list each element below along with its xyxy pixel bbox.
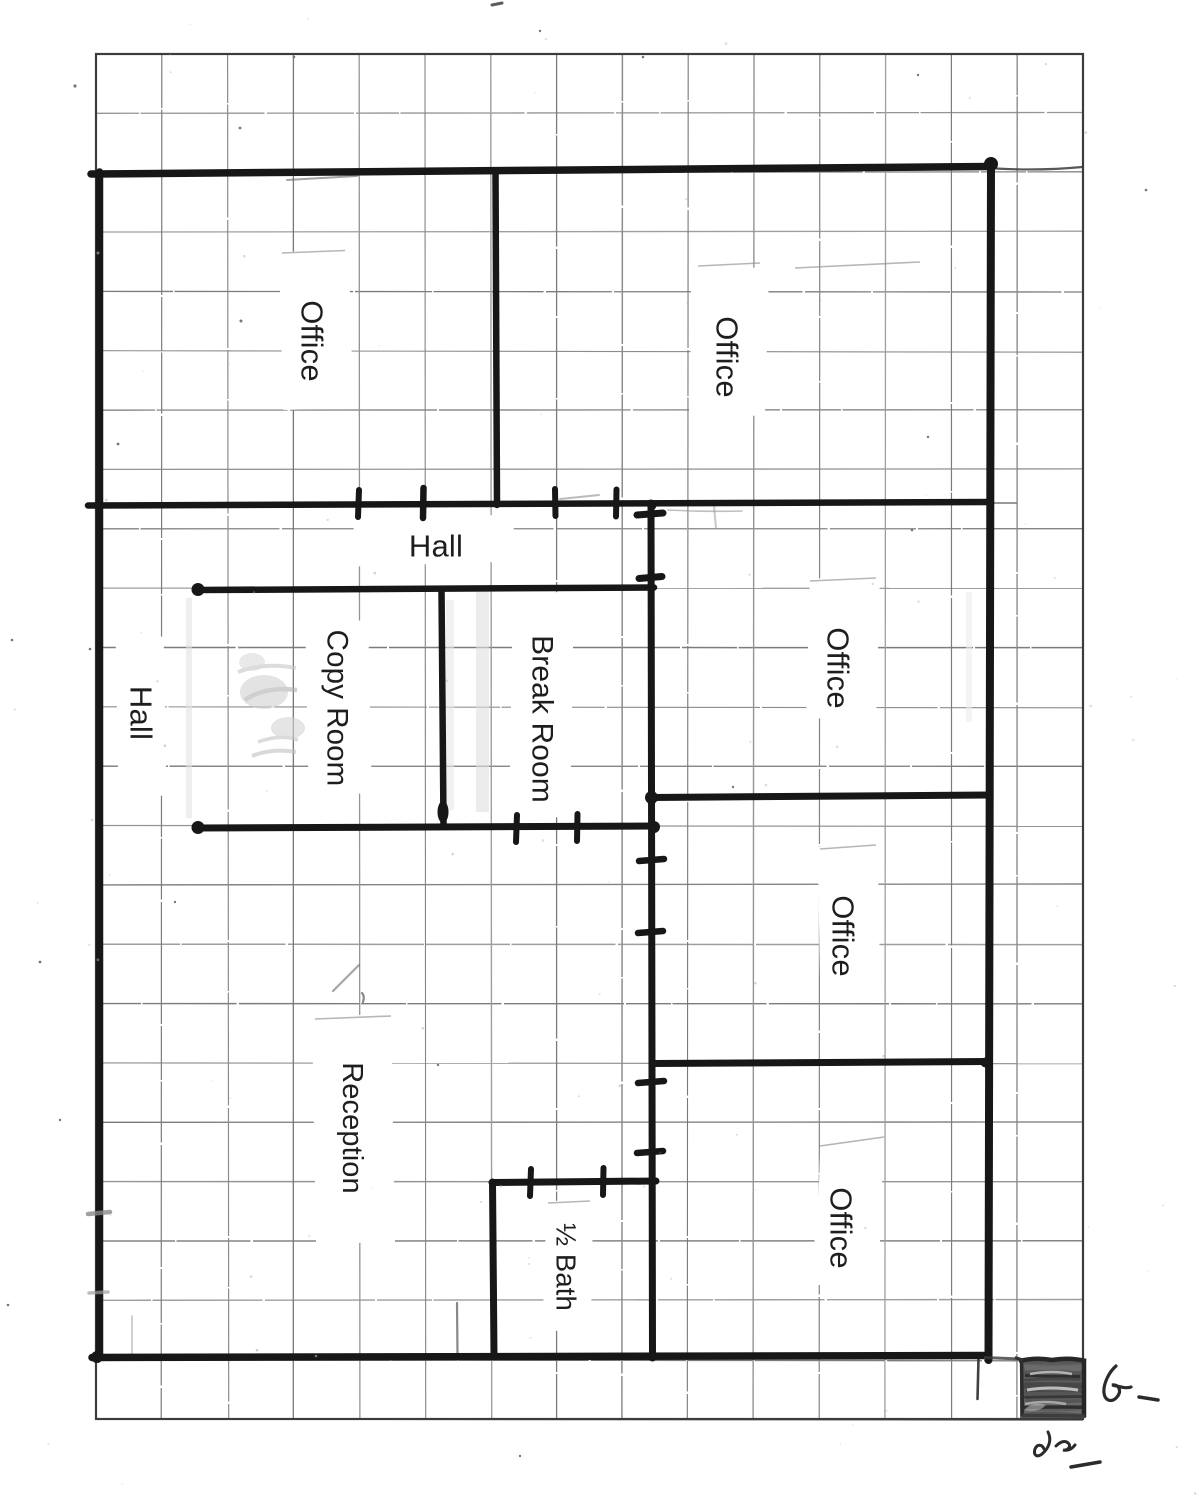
svg-text:Reception: Reception <box>336 1062 368 1194</box>
svg-text:Office: Office <box>710 316 745 398</box>
svg-text:Hall: Hall <box>409 529 463 564</box>
svg-text:Hall: Hall <box>124 686 159 740</box>
svg-text:Copy Room: Copy Room <box>321 630 354 787</box>
svg-text:½ Bath: ½ Bath <box>551 1223 582 1311</box>
svg-text:Office: Office <box>821 627 856 709</box>
svg-text:Office: Office <box>826 895 861 977</box>
svg-text:Office: Office <box>824 1187 859 1269</box>
svg-text:Break Room: Break Room <box>526 635 559 803</box>
svg-text:Office: Office <box>295 300 330 382</box>
